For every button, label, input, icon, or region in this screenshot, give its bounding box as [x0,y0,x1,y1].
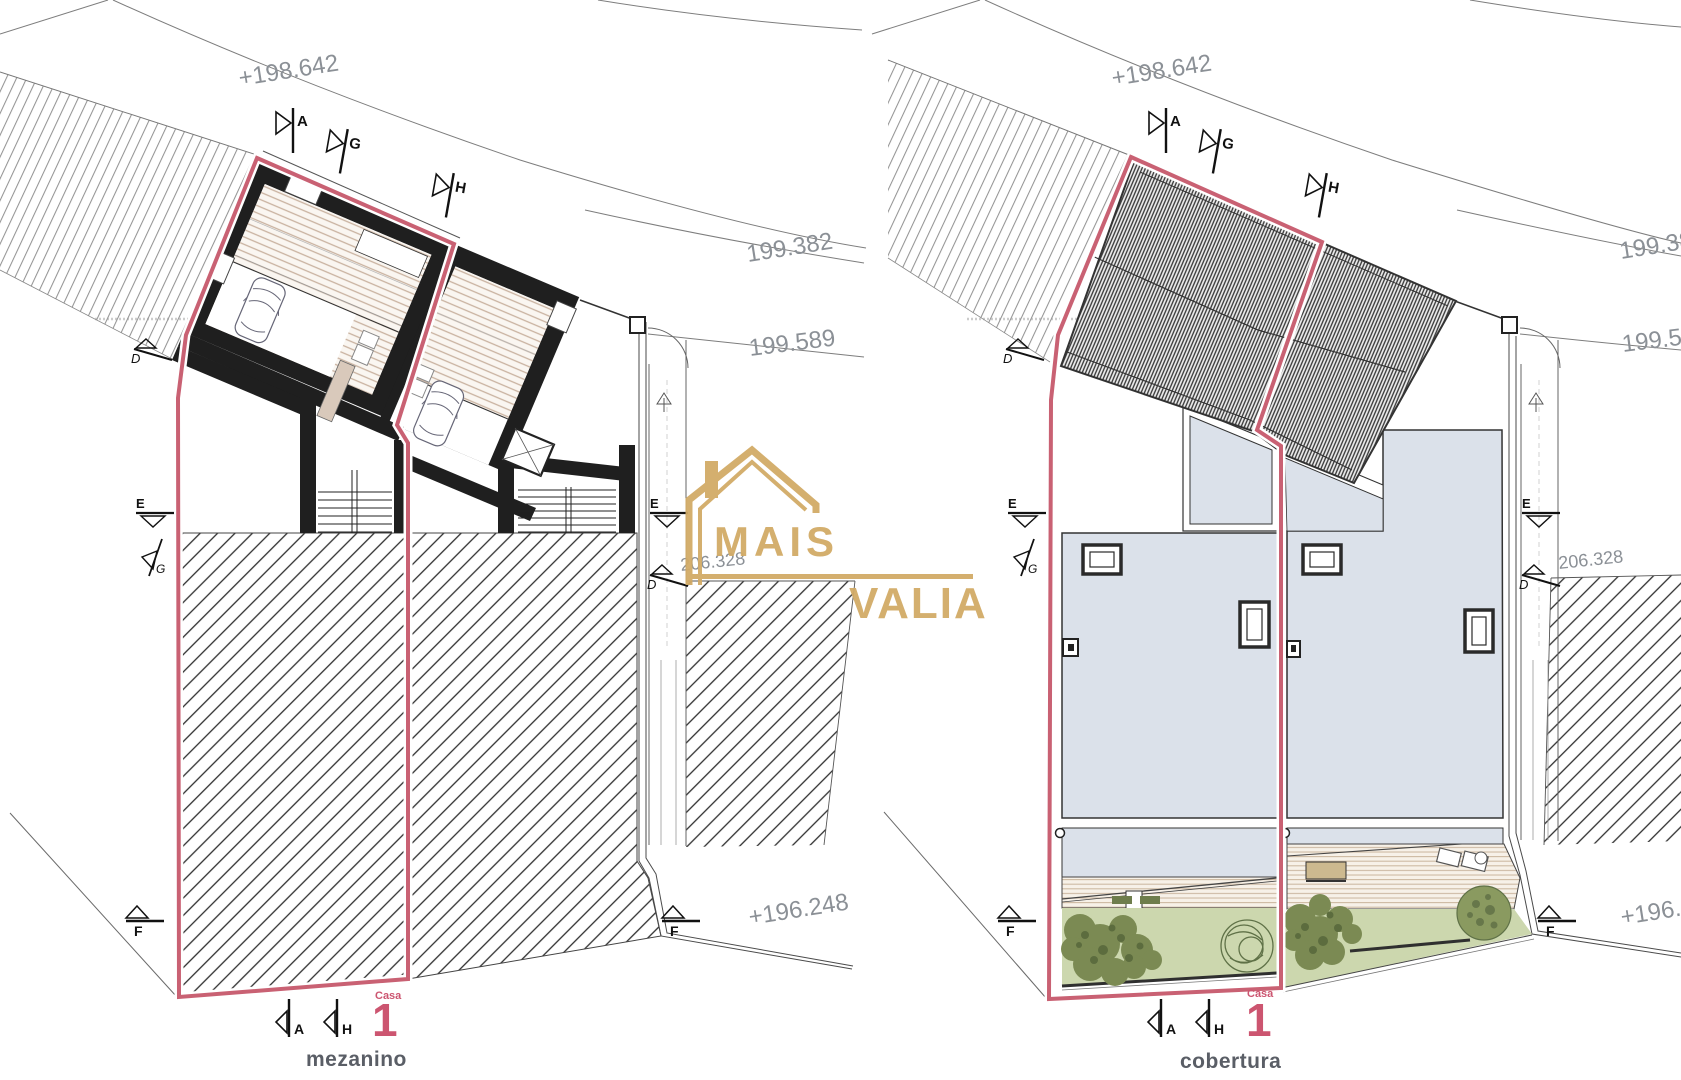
svg-text:H: H [342,1021,352,1037]
svg-text:F: F [1546,923,1555,939]
svg-text:H: H [1214,1021,1224,1037]
svg-text:1: 1 [1246,994,1272,1046]
svg-text:VALIA: VALIA [849,579,988,628]
svg-text:A: A [297,113,308,130]
svg-text:E: E [650,496,659,511]
svg-text:A: A [294,1021,304,1037]
svg-text:F: F [1006,923,1015,939]
svg-text:cobertura: cobertura [1180,1050,1281,1073]
svg-text:MAIS: MAIS [714,518,839,565]
svg-text:D: D [1003,351,1012,366]
svg-text:1: 1 [372,994,398,1046]
svg-text:A: A [1170,113,1181,130]
svg-text:F: F [134,923,143,939]
svg-text:D: D [131,351,140,366]
svg-text:D: D [1519,577,1528,592]
svg-text:G: G [156,562,165,576]
svg-text:E: E [1522,496,1531,511]
svg-text:F: F [670,923,679,939]
svg-text:E: E [1008,496,1017,511]
svg-text:A: A [1166,1021,1176,1037]
svg-text:D: D [647,577,656,592]
svg-text:mezanino: mezanino [306,1048,407,1071]
svg-text:G: G [1028,562,1037,576]
svg-text:E: E [136,496,145,511]
